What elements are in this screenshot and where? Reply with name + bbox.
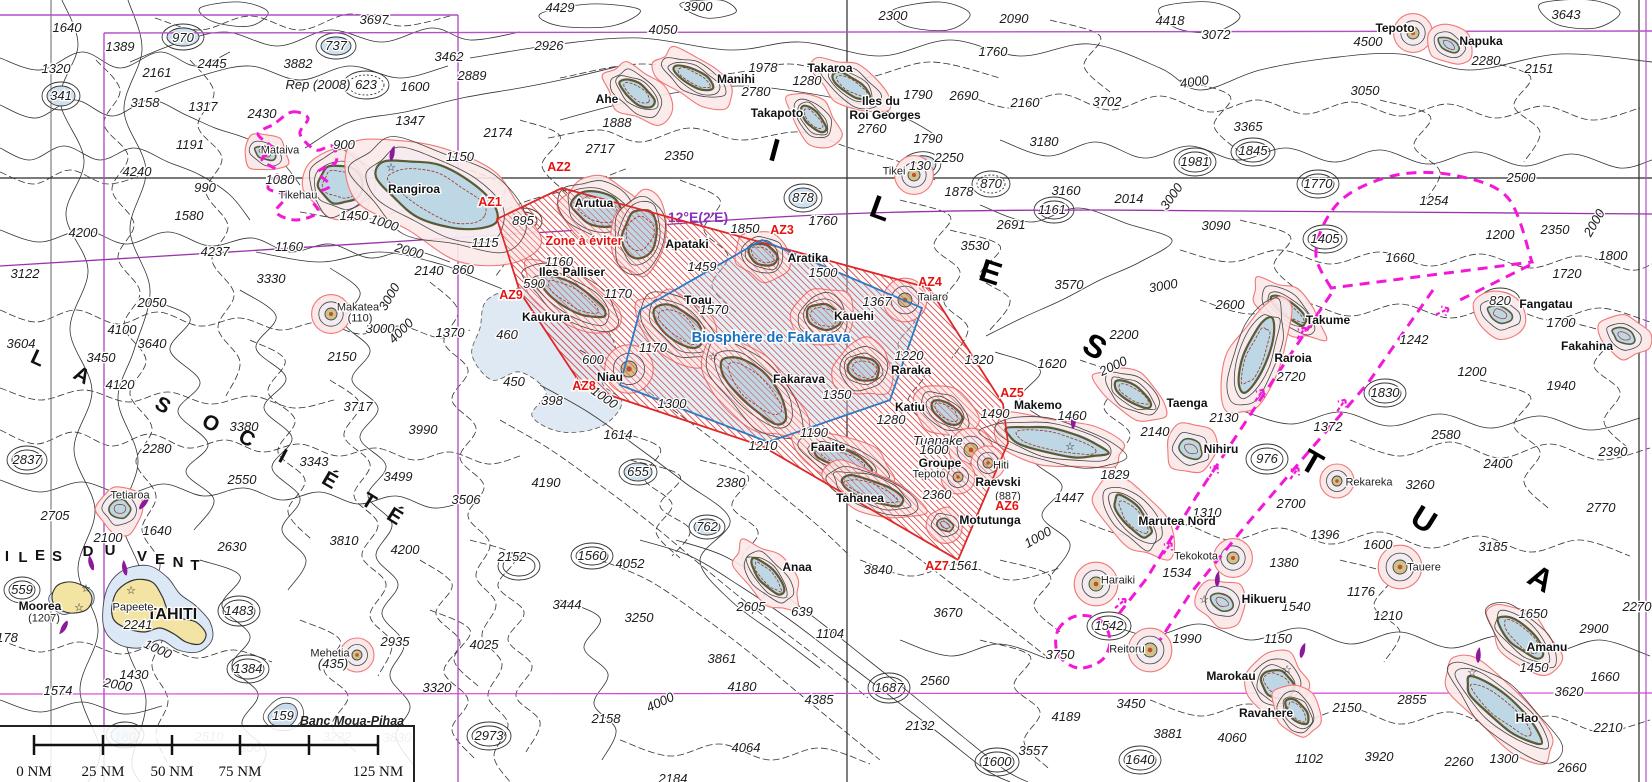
svg-text:3810: 3810 [330, 533, 360, 548]
svg-text:1102: 1102 [1295, 751, 1324, 766]
svg-text:Marutea Nord: Marutea Nord [1138, 514, 1215, 528]
svg-text:Katiu: Katiu [895, 400, 925, 414]
svg-text:1115: 1115 [472, 235, 500, 250]
svg-text:3750: 3750 [1046, 647, 1076, 662]
svg-text:L: L [18, 549, 27, 566]
svg-text:1170: 1170 [604, 286, 633, 301]
svg-text:3620: 3620 [1555, 684, 1585, 699]
svg-text:655: 655 [627, 464, 649, 479]
svg-text:2550: 2550 [227, 472, 258, 487]
svg-text:T: T [190, 557, 199, 574]
svg-text:4240: 4240 [123, 164, 153, 179]
svg-text:☆: ☆ [81, 583, 91, 595]
svg-text:4418: 4418 [1156, 13, 1186, 28]
svg-text:1317: 1317 [189, 99, 219, 114]
svg-text:3640: 3640 [138, 336, 168, 351]
svg-text:Motutunga: Motutunga [959, 513, 1021, 527]
svg-text:(110): (110) [348, 313, 373, 325]
svg-text:Anaa: Anaa [782, 560, 812, 574]
svg-text:3462: 3462 [435, 49, 465, 64]
svg-text:2580: 2580 [1431, 427, 1462, 442]
svg-text:2090: 2090 [999, 11, 1030, 26]
svg-text:1878: 1878 [945, 184, 975, 199]
svg-text:Mataiva: Mataiva [261, 145, 300, 157]
svg-text:3643: 3643 [1552, 7, 1582, 22]
svg-text:2151: 2151 [1524, 61, 1554, 76]
svg-text:2350: 2350 [664, 148, 695, 163]
svg-text:☆: ☆ [1065, 441, 1075, 453]
svg-text:☆: ☆ [74, 602, 84, 614]
svg-text:4237: 4237 [201, 244, 231, 259]
svg-text:Makemo: Makemo [1014, 398, 1062, 412]
svg-text:☆: ☆ [1199, 594, 1209, 606]
svg-text:1500: 1500 [809, 265, 839, 280]
svg-text:1640: 1640 [1126, 752, 1156, 767]
svg-text:2720: 2720 [1276, 369, 1307, 384]
svg-text:Rep (2008): Rep (2008) [285, 77, 350, 92]
svg-text:895: 895 [512, 213, 534, 228]
svg-text:2280: 2280 [142, 441, 173, 456]
svg-text:3840: 3840 [864, 562, 894, 577]
svg-text:3702: 3702 [1093, 94, 1123, 109]
svg-text:Tepoto: Tepoto [1375, 21, 1414, 35]
svg-text:1190: 1190 [800, 425, 829, 440]
svg-text:3320: 3320 [423, 680, 453, 695]
svg-text:1561: 1561 [950, 558, 979, 573]
svg-text:Hikueru: Hikueru [1242, 592, 1287, 606]
svg-text:820: 820 [1489, 293, 1511, 308]
svg-text:Tahanea: Tahanea [836, 491, 884, 505]
svg-text:1534: 1534 [1163, 565, 1192, 580]
svg-text:2445: 2445 [197, 56, 228, 71]
svg-text:Faaite: Faaite [811, 440, 846, 454]
svg-text:2150: 2150 [1332, 700, 1363, 715]
svg-text:4064: 4064 [732, 740, 761, 755]
svg-text:Raraka: Raraka [891, 363, 931, 377]
svg-text:☆: ☆ [126, 585, 136, 597]
svg-text:Iles Palliser: Iles Palliser [539, 265, 605, 279]
svg-text:878: 878 [792, 190, 814, 205]
svg-text:AZ8: AZ8 [572, 379, 596, 393]
svg-text:Hiti: Hiti [993, 460, 1009, 472]
svg-text:1280: 1280 [877, 412, 907, 427]
svg-text:1350: 1350 [823, 387, 853, 402]
svg-text:3570: 3570 [1055, 277, 1085, 292]
svg-text:2705: 2705 [40, 508, 71, 523]
svg-text:2210: 2210 [1593, 720, 1624, 735]
svg-text:3250: 3250 [625, 610, 655, 625]
svg-text:2350: 2350 [1540, 222, 1571, 237]
svg-text:Reitoru: Reitoru [1109, 644, 1144, 656]
svg-text:1459: 1459 [688, 259, 717, 274]
svg-text:1160: 1160 [275, 239, 304, 254]
svg-text:4429: 4429 [546, 0, 575, 15]
svg-text:Ahe: Ahe [596, 92, 619, 106]
svg-text:1800: 1800 [1599, 248, 1629, 263]
svg-text:3072: 3072 [1202, 27, 1232, 42]
svg-text:2160: 2160 [1010, 95, 1041, 110]
svg-text:125 NM: 125 NM [353, 764, 403, 780]
svg-text:2300: 2300 [878, 8, 909, 23]
svg-text:1845: 1845 [1239, 143, 1269, 158]
svg-text:E: E [155, 551, 165, 568]
svg-text:1600: 1600 [401, 79, 431, 94]
svg-text:3990: 3990 [409, 422, 439, 437]
svg-text:1640: 1640 [53, 20, 83, 35]
svg-text:3180: 3180 [1030, 134, 1060, 149]
svg-text:Nihiru: Nihiru [1204, 442, 1239, 456]
svg-text:737: 737 [325, 38, 347, 53]
svg-text:1161: 1161 [1038, 202, 1066, 217]
svg-text:1347: 1347 [396, 113, 426, 128]
svg-text:2660: 2660 [1557, 760, 1588, 775]
svg-text:☆: ☆ [1282, 664, 1292, 676]
svg-text:2500: 2500 [1506, 170, 1537, 185]
svg-text:2605: 2605 [736, 599, 767, 614]
svg-text:2600: 2600 [1215, 297, 1246, 312]
svg-text:1280: 1280 [793, 73, 823, 88]
svg-text:1320: 1320 [42, 61, 72, 76]
svg-text:1405: 1405 [1311, 231, 1341, 246]
svg-text:Apataki: Apataki [665, 237, 708, 251]
svg-text:2630: 2630 [217, 539, 248, 554]
svg-text:Aratika: Aratika [788, 251, 829, 265]
svg-text:E: E [35, 547, 45, 564]
svg-text:☆: ☆ [1467, 667, 1477, 679]
svg-text:1200: 1200 [1486, 227, 1516, 242]
svg-text:870: 870 [980, 176, 1002, 191]
svg-text:1560: 1560 [578, 548, 608, 563]
svg-text:1829: 1829 [1101, 467, 1130, 482]
svg-text:2935: 2935 [380, 634, 411, 649]
svg-text:600: 600 [582, 352, 604, 367]
svg-text:3450: 3450 [87, 350, 117, 365]
svg-text:1614: 1614 [604, 427, 633, 442]
svg-text:S: S [52, 548, 62, 565]
svg-text:2690: 2690 [949, 88, 980, 103]
svg-text:1760: 1760 [979, 44, 1009, 59]
svg-text:3343: 3343 [300, 454, 330, 469]
svg-text:3604: 3604 [7, 336, 36, 351]
svg-text:1490: 1490 [981, 406, 1011, 421]
svg-text:623: 623 [355, 77, 377, 92]
svg-text:Taiaro: Taiaro [918, 292, 948, 304]
svg-text:1372: 1372 [1314, 419, 1344, 434]
svg-text:1320: 1320 [965, 352, 995, 367]
svg-text:D: D [83, 543, 94, 560]
svg-text:I: I [5, 548, 9, 565]
svg-text:1790: 1790 [914, 131, 944, 146]
svg-text:860: 860 [452, 262, 474, 277]
svg-text:1574: 1574 [44, 683, 73, 698]
svg-text:559: 559 [11, 582, 33, 597]
svg-text:1640: 1640 [143, 523, 173, 538]
svg-text:Napuka: Napuka [1459, 34, 1503, 48]
svg-text:2280: 2280 [1471, 53, 1502, 68]
svg-text:Raevski: Raevski [975, 475, 1020, 489]
svg-text:976: 976 [1256, 451, 1278, 466]
svg-text:2140: 2140 [414, 263, 445, 278]
svg-text:1080: 1080 [266, 172, 296, 187]
svg-text:1384: 1384 [234, 661, 263, 676]
svg-text:1150: 1150 [446, 149, 475, 164]
svg-text:3158: 3158 [131, 95, 161, 110]
svg-text:1242: 1242 [1400, 332, 1430, 347]
svg-text:Ravahere: Ravahere [1239, 706, 1293, 720]
svg-text:1600: 1600 [983, 754, 1013, 769]
svg-text:1542: 1542 [1095, 618, 1125, 633]
svg-text:1650: 1650 [1519, 606, 1549, 621]
svg-text:130: 130 [909, 158, 931, 173]
svg-text:2717: 2717 [585, 141, 616, 156]
svg-text:AZ5: AZ5 [1000, 386, 1024, 400]
svg-text:3185: 3185 [1479, 539, 1509, 554]
svg-text:Kaukura: Kaukura [522, 310, 570, 324]
svg-text:Raroia: Raroia [1274, 351, 1312, 365]
svg-text:Rekareka: Rekareka [1345, 477, 1393, 489]
svg-text:1150: 1150 [1264, 631, 1293, 646]
svg-text:1170: 1170 [639, 340, 668, 355]
svg-text:U: U [105, 542, 116, 559]
svg-text:3160: 3160 [1052, 183, 1082, 198]
svg-text:Manihi: Manihi [717, 72, 755, 86]
svg-text:1220: 1220 [895, 348, 925, 363]
svg-text:2430: 2430 [247, 106, 278, 121]
svg-text:1380: 1380 [1270, 555, 1300, 570]
svg-text:AZ4: AZ4 [918, 275, 942, 289]
svg-text:Takaroa: Takaroa [807, 61, 852, 75]
svg-text:2900: 2900 [1579, 621, 1610, 636]
svg-text:4050: 4050 [649, 22, 679, 37]
svg-text:3697: 3697 [360, 12, 390, 27]
svg-text:1888: 1888 [603, 115, 633, 130]
svg-text:(1207): (1207) [28, 613, 60, 625]
svg-text:Iles du: Iles du [862, 94, 900, 108]
svg-text:AZ7: AZ7 [925, 559, 949, 573]
svg-text:1483: 1483 [225, 603, 255, 618]
svg-text:3330: 3330 [257, 271, 287, 286]
svg-text:1104: 1104 [816, 626, 844, 641]
svg-text:AZ6: AZ6 [995, 499, 1019, 513]
svg-text:2855: 2855 [1397, 692, 1428, 707]
svg-text:Tikei: Tikei [883, 166, 906, 178]
svg-text:3557: 3557 [1019, 743, 1049, 758]
svg-text:1450: 1450 [1520, 660, 1550, 675]
svg-text:1210: 1210 [749, 438, 779, 453]
svg-text:2400: 2400 [1483, 456, 1514, 471]
svg-text:1990: 1990 [1173, 631, 1203, 646]
svg-text:4190: 4190 [532, 475, 562, 490]
svg-text:3670: 3670 [934, 605, 964, 620]
svg-text:Tauere: Tauere [1407, 562, 1441, 574]
svg-text:☆: ☆ [386, 162, 396, 174]
svg-text:1790: 1790 [904, 87, 934, 102]
svg-text:3050: 3050 [1351, 83, 1381, 98]
svg-text:3881: 3881 [1154, 726, 1183, 741]
svg-text:3499: 3499 [384, 469, 413, 484]
svg-text:Tepoto: Tepoto [912, 469, 945, 481]
svg-text:2390: 2390 [1598, 444, 1629, 459]
svg-text:2150: 2150 [327, 349, 358, 364]
svg-text:Mehetia: Mehetia [310, 648, 350, 660]
svg-text:Papeete: Papeete [113, 602, 154, 614]
svg-text:3365: 3365 [1234, 119, 1264, 134]
svg-text:25 NM: 25 NM [82, 764, 125, 780]
svg-text:Takume: Takume [1306, 313, 1351, 327]
svg-text:Tikehau: Tikehau [279, 190, 318, 202]
svg-text:Arutua: Arutua [575, 196, 614, 210]
svg-text:2380: 2380 [716, 475, 747, 490]
svg-text:2760: 2760 [857, 121, 888, 136]
svg-text:1176: 1176 [1347, 584, 1376, 599]
svg-text:1447: 1447 [1055, 490, 1085, 505]
svg-text:341: 341 [50, 88, 72, 103]
svg-text:2140: 2140 [1140, 424, 1171, 439]
svg-text:460: 460 [496, 327, 518, 342]
svg-text:4385: 4385 [805, 692, 835, 707]
svg-text:2250: 2250 [934, 150, 965, 165]
svg-text:AZ2: AZ2 [547, 160, 571, 174]
svg-text:1981: 1981 [1181, 154, 1210, 169]
svg-text:639: 639 [791, 604, 813, 619]
svg-text:2360: 2360 [922, 487, 953, 502]
svg-text:TAHITI: TAHITI [147, 606, 197, 623]
svg-text:990: 990 [194, 180, 216, 195]
svg-text:4120: 4120 [106, 377, 136, 392]
svg-text:Rangiroa: Rangiroa [388, 182, 440, 196]
svg-text:2691: 2691 [996, 217, 1026, 232]
svg-text:1660: 1660 [1386, 250, 1416, 265]
svg-text:2560: 2560 [920, 673, 951, 688]
svg-text:Takapoto: Takapoto [751, 106, 803, 120]
svg-text:2014: 2014 [1114, 191, 1144, 206]
svg-text:1940: 1940 [1547, 378, 1577, 393]
svg-text:2184: 2184 [658, 771, 688, 782]
svg-text:2889: 2889 [457, 68, 487, 83]
svg-text:4200: 4200 [391, 542, 421, 557]
svg-text:2770: 2770 [1586, 500, 1617, 515]
svg-text:1300: 1300 [1490, 751, 1520, 766]
svg-text:3717: 3717 [344, 399, 374, 414]
svg-text:Amanu: Amanu [1527, 640, 1568, 654]
svg-text:3861: 3861 [708, 651, 737, 666]
svg-text:1300: 1300 [658, 396, 688, 411]
svg-text:Haraiki: Haraiki [1101, 575, 1135, 587]
svg-text:Tetiaroa: Tetiaroa [110, 490, 150, 502]
svg-text:2260: 2260 [1444, 754, 1475, 769]
svg-text:1254: 1254 [1420, 193, 1449, 208]
svg-text:1760: 1760 [809, 213, 839, 228]
svg-text:Fakahina: Fakahina [1561, 339, 1613, 353]
svg-text:1389: 1389 [106, 39, 135, 54]
svg-text:1660: 1660 [1591, 669, 1621, 684]
svg-text:Fakarava: Fakarava [773, 372, 825, 386]
svg-text:Moorea: Moorea [19, 599, 62, 613]
svg-text:3450: 3450 [1117, 696, 1147, 711]
svg-text:2270: 2270 [1622, 599, 1652, 614]
svg-text:Biosphère de Fakarava: Biosphère de Fakarava [692, 330, 852, 346]
svg-text:Fangatau: Fangatau [1519, 297, 1572, 311]
svg-text:178: 178 [0, 630, 19, 645]
svg-text:1770: 1770 [1304, 176, 1334, 191]
svg-text:2050: 2050 [137, 295, 168, 310]
svg-text:Taenga: Taenga [1166, 396, 1207, 410]
svg-text:4500: 4500 [1354, 34, 1384, 49]
svg-text:159: 159 [272, 708, 294, 723]
svg-text:3920: 3920 [1365, 749, 1395, 764]
svg-text:3882: 3882 [284, 56, 314, 71]
svg-text:970: 970 [172, 30, 194, 45]
svg-text:3444: 3444 [553, 597, 582, 612]
svg-text:3122: 3122 [11, 266, 41, 281]
svg-text:1450: 1450 [340, 208, 370, 223]
svg-text:4200: 4200 [69, 225, 99, 240]
svg-text:1600: 1600 [1364, 537, 1394, 552]
svg-text:450: 450 [503, 374, 525, 389]
svg-text:AZ9: AZ9 [499, 288, 523, 302]
svg-text:2780: 2780 [741, 84, 772, 99]
svg-text:V: V [137, 548, 147, 565]
svg-text:2130: 2130 [1209, 410, 1240, 425]
svg-text:Tekokota: Tekokota [1174, 551, 1219, 563]
svg-text:1191: 1191 [176, 137, 204, 152]
svg-text:1850: 1850 [731, 221, 761, 236]
svg-text:1200: 1200 [1458, 364, 1488, 379]
svg-text:3090: 3090 [1202, 218, 1232, 233]
svg-text:2174: 2174 [483, 125, 513, 140]
svg-text:1600: 1600 [920, 442, 950, 457]
svg-text:3260: 3260 [1406, 477, 1436, 492]
svg-text:1830: 1830 [1371, 385, 1401, 400]
svg-text:AZ3: AZ3 [770, 223, 794, 237]
svg-text:50 NM: 50 NM [151, 764, 194, 780]
svg-text:1687: 1687 [875, 680, 905, 695]
svg-text:AZ1: AZ1 [478, 195, 502, 209]
svg-text:Kauehi: Kauehi [834, 309, 874, 323]
svg-text:1396: 1396 [1311, 527, 1341, 542]
svg-text:4052: 4052 [616, 556, 646, 571]
svg-text:Hao: Hao [1516, 711, 1539, 725]
svg-text:2200: 2200 [1109, 327, 1140, 342]
svg-text:3506: 3506 [452, 492, 482, 507]
svg-text:4060: 4060 [1218, 730, 1248, 745]
svg-text:75 NM: 75 NM [219, 764, 262, 780]
svg-text:1720: 1720 [1553, 266, 1583, 281]
svg-text:1580: 1580 [175, 208, 205, 223]
svg-text:N: N [173, 554, 184, 571]
svg-text:Toau: Toau [684, 293, 712, 307]
svg-text:1370: 1370 [436, 325, 466, 340]
svg-text:☆: ☆ [708, 351, 718, 363]
svg-text:2152: 2152 [497, 549, 528, 564]
svg-text:2837: 2837 [12, 452, 43, 467]
svg-text:1367: 1367 [863, 294, 893, 309]
svg-text:2926: 2926 [534, 38, 565, 53]
svg-text:0 NM: 0 NM [16, 764, 51, 780]
svg-text:900: 900 [333, 137, 355, 152]
svg-text:Roi Georges: Roi Georges [849, 108, 921, 122]
svg-text:4025: 4025 [470, 637, 500, 652]
svg-text:3900: 3900 [684, 0, 714, 14]
svg-text:Niau: Niau [597, 370, 623, 384]
svg-text:1700: 1700 [1547, 315, 1577, 330]
svg-text:4100: 4100 [108, 322, 138, 337]
svg-text:2158: 2158 [591, 711, 622, 726]
svg-text:2973: 2973 [474, 728, 505, 743]
svg-text:762: 762 [696, 519, 718, 534]
svg-text:4189: 4189 [1052, 709, 1081, 724]
svg-text:2161: 2161 [142, 65, 172, 80]
